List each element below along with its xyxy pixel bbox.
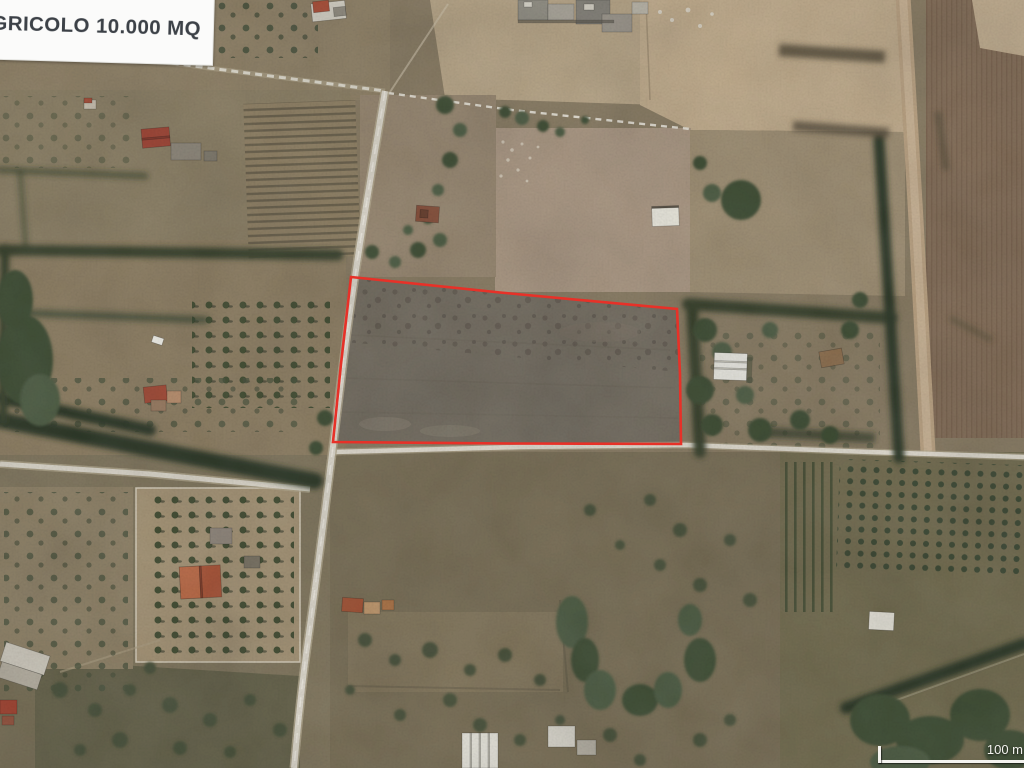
scale-bar-label: 100 m: [987, 742, 1023, 757]
satellite-map: AGRICOLO 10.000 MQ 100 m: [0, 0, 1024, 768]
map-scale-bar: 100 m: [878, 740, 1024, 766]
aerial-imagery: [0, 0, 1024, 768]
scale-bar-tick: [878, 746, 881, 763]
listing-label: AGRICOLO 10.000 MQ: [0, 0, 215, 66]
listing-label-text: AGRICOLO 10.000 MQ: [0, 11, 201, 41]
photo-noise-overlay: [0, 0, 1024, 768]
scale-bar-line: [878, 760, 1024, 763]
